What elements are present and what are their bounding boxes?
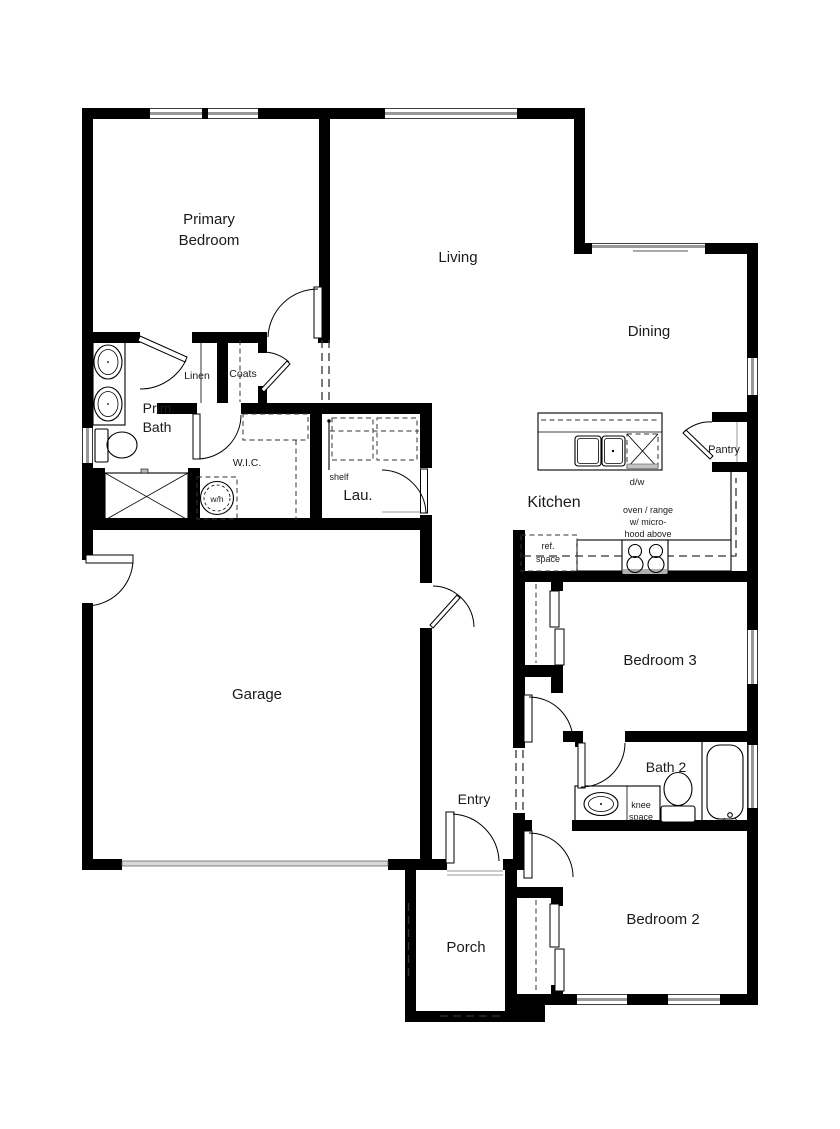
door-wic	[193, 414, 241, 459]
label-entry: Entry	[458, 791, 491, 807]
door-prim-bath	[138, 336, 187, 389]
label-water-heater: w/h	[209, 494, 224, 504]
label-pantry: Pantry	[708, 444, 740, 456]
label-oven-2: w/ micro-	[629, 517, 667, 527]
garage-door	[122, 861, 388, 866]
room-labels: Primary Bedroom Living Dining Prim. Bath…	[143, 211, 741, 956]
label-living: Living	[438, 249, 477, 266]
label-knee-1: knee	[631, 800, 651, 810]
label-primary-bedroom-1: Primary	[183, 211, 235, 228]
front-door-sill	[447, 871, 503, 875]
label-bedroom3: Bedroom 3	[623, 652, 696, 669]
floor-plan-page: Primary Bedroom Living Dining Prim. Bath…	[0, 0, 840, 1129]
doors	[86, 287, 713, 878]
label-shelf: shelf	[329, 472, 349, 482]
laundry-appliance-spaces	[327, 418, 426, 512]
label-dining: Dining	[628, 323, 671, 340]
label-bath2: Bath 2	[646, 759, 687, 775]
door-bath2	[578, 743, 625, 788]
bedroom3-closet	[536, 584, 564, 665]
porch-openings	[409, 903, 506, 1016]
label-prim-bath-1: Prim.	[143, 400, 176, 416]
label-oven-1: oven / range	[623, 505, 673, 515]
prim-bath-toilet	[95, 429, 137, 462]
label-wic: W.I.C.	[233, 457, 262, 469]
kitchen-island	[538, 413, 662, 470]
door-coats	[261, 352, 290, 392]
label-prim-bath-2: Bath	[143, 419, 172, 435]
bath2-tub	[702, 739, 748, 825]
label-coats: Coats	[229, 368, 256, 380]
label-kitchen: Kitchen	[527, 494, 580, 511]
floor-plan-drawing: Primary Bedroom Living Dining Prim. Bath…	[0, 0, 840, 1129]
prim-bath-vanity	[93, 338, 125, 425]
door-garage-side	[86, 555, 133, 606]
label-ref-1: ref.	[541, 541, 554, 551]
label-primary-bedroom-2: Bedroom	[179, 232, 240, 249]
prim-bath-shower	[100, 469, 188, 520]
label-garage: Garage	[232, 686, 282, 703]
dishwasher	[627, 434, 658, 469]
door-bedroom2	[524, 831, 573, 878]
opening-living-hall	[322, 340, 329, 402]
label-laundry: Lau.	[343, 487, 372, 504]
label-dishwasher: d/w	[630, 477, 645, 488]
bath2-toilet	[661, 773, 695, 823]
range	[622, 540, 668, 574]
label-oven-3: hood above	[624, 529, 671, 539]
label-porch: Porch	[446, 939, 485, 956]
kitchen-sink	[575, 436, 625, 466]
opening-entry-hall	[516, 750, 523, 812]
bedroom2-closet	[536, 900, 564, 992]
door-garage-entry	[430, 586, 474, 628]
label-ref-2: space	[536, 554, 560, 564]
door-primary-bedroom	[268, 287, 322, 338]
door-front	[446, 812, 499, 863]
label-linen: Linen	[184, 370, 210, 382]
label-bedroom2: Bedroom 2	[626, 911, 699, 928]
label-knee-2: space	[629, 812, 653, 822]
door-laundry	[382, 469, 428, 513]
